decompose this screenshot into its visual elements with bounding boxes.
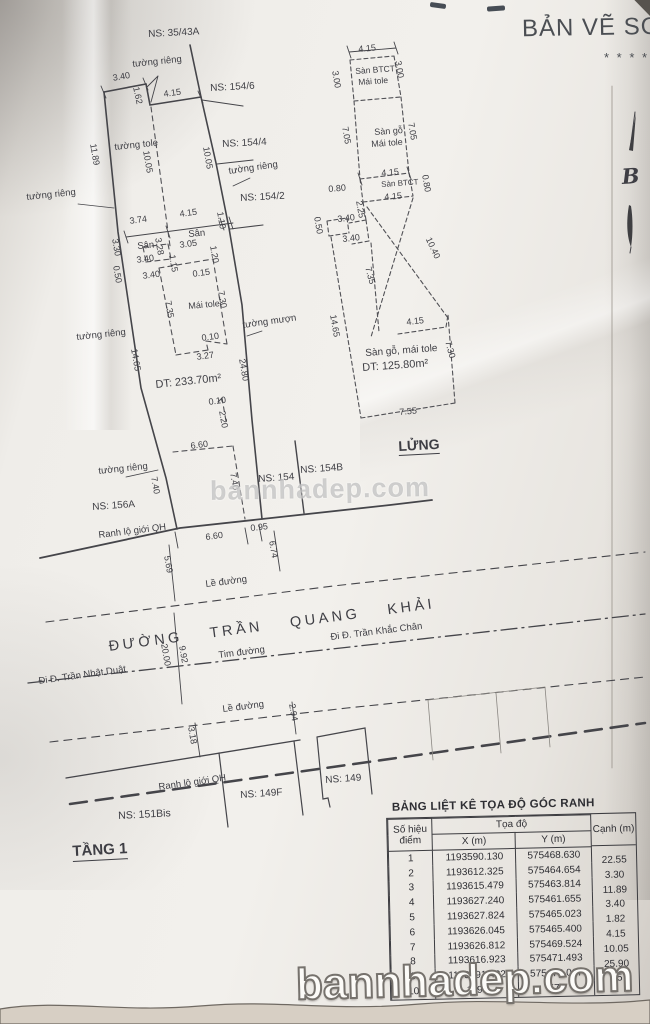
dim-label: 7.40 <box>149 476 161 495</box>
canh-value: 11.89 <box>593 883 637 899</box>
canh-value: 22.55 <box>592 853 636 869</box>
dim-label: 3.18 <box>186 726 198 745</box>
dim-label: 4.15 <box>406 316 424 327</box>
dim-label: 3.00 <box>330 70 342 89</box>
dim-label: 4.15 <box>381 167 399 178</box>
dim-label: 3.40 <box>337 213 355 224</box>
canh-value: 3.40 <box>593 898 637 914</box>
dim-label: 7.05 <box>340 126 352 145</box>
dim-label: 7.35 <box>163 300 175 319</box>
floor-title: LỬNG <box>398 437 440 456</box>
dim-label: 0.50 <box>111 265 123 284</box>
canh-value: 4.15 <box>594 927 638 943</box>
dim-label: 1.10 <box>215 211 227 230</box>
dim-label: 7.30 <box>216 290 228 309</box>
dim-label: 1.15 <box>167 254 179 273</box>
dim-label: 6.74 <box>267 540 279 559</box>
watermark-middle: bannhadep.com <box>210 472 431 507</box>
dim-label: 2.25 <box>354 200 366 219</box>
floor-title: TẦNG 1 <box>72 841 128 862</box>
dim-label: 4.15 <box>358 43 376 54</box>
dim-label: 7.05 <box>406 122 418 141</box>
canh-value: 1.82 <box>593 912 637 928</box>
dim-label: 0.80 <box>328 183 346 194</box>
dim-label: 0.95 <box>250 522 268 533</box>
dim-label: 3.28 <box>153 237 165 256</box>
col-header-canh: Cạnh (m) <box>591 813 636 846</box>
dim-label: 4.15 <box>384 191 402 202</box>
dim-label: 3.40 <box>342 233 360 244</box>
area-note: Sàn gỗ <box>374 126 403 137</box>
dim-label: 9.92 <box>177 645 189 664</box>
dim-label: 3.00 <box>393 60 405 79</box>
dim-label: 2.20 <box>217 410 229 429</box>
dim-label: 2.94 <box>287 703 299 722</box>
dim-label: 0.80 <box>420 174 432 193</box>
scanned-survey-drawing: BẢN VẼ SƠ * * * * * <box>0 0 650 1024</box>
canh-value: 3.30 <box>592 868 636 884</box>
dim-label: 0.50 <box>312 216 324 235</box>
dim-label: 1.20 <box>208 245 220 264</box>
area-note: Sân <box>137 241 155 252</box>
dim-label: 3.30 <box>110 238 122 257</box>
dim-label: 7.55 <box>399 406 417 417</box>
watermark-bottom: bannhadep.com <box>295 952 634 1011</box>
north-arrow-letter: B <box>621 165 640 188</box>
col-header-x: X (m) <box>432 832 516 850</box>
dim-label: 5.69 <box>162 555 174 574</box>
col-header-y: Y (m) <box>515 831 591 849</box>
col-header-point: Số hiệu điểm <box>388 818 433 851</box>
